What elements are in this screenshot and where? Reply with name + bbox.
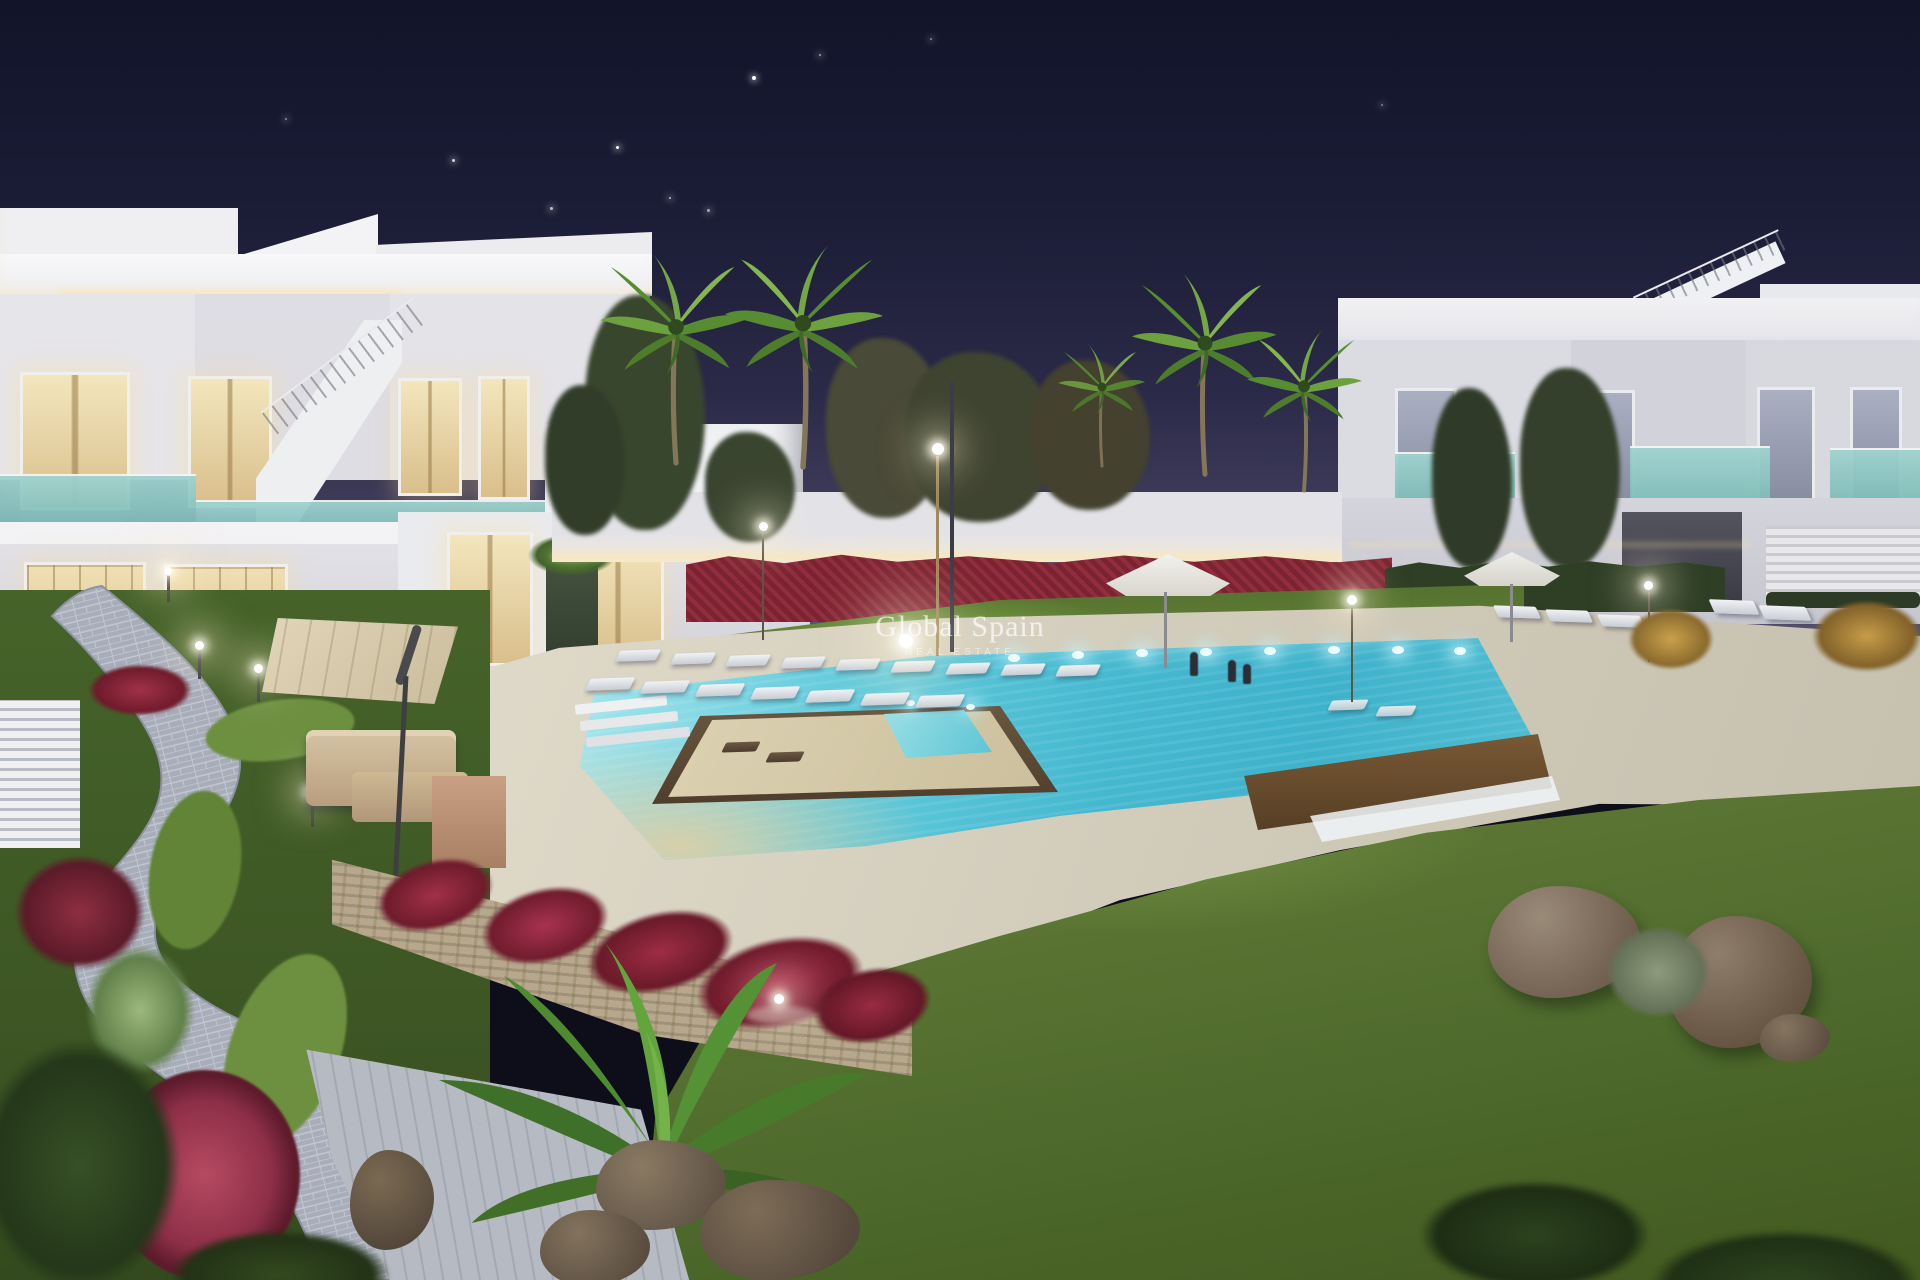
underwater-light xyxy=(1454,647,1466,655)
window-lit xyxy=(478,376,530,500)
person-silhouette xyxy=(1228,660,1236,682)
street-lamp-light xyxy=(932,443,944,455)
lamp-post xyxy=(1351,606,1353,702)
lamp-post xyxy=(762,532,764,640)
parasol-pole xyxy=(1510,584,1513,642)
balcony-glass xyxy=(1630,446,1770,502)
sun-lounger xyxy=(615,649,661,661)
bollard-light xyxy=(164,567,172,575)
sun-lounger xyxy=(780,656,826,668)
underwater-light xyxy=(1136,649,1148,657)
rock xyxy=(540,1210,650,1280)
balcony-glass xyxy=(0,474,196,526)
underwater-light xyxy=(966,704,975,710)
sun-lounger xyxy=(890,660,936,672)
star xyxy=(752,76,756,80)
sun-lounger xyxy=(915,694,966,708)
bollard xyxy=(257,674,260,702)
sun-lounger xyxy=(695,683,746,697)
underwater-light xyxy=(1008,654,1020,662)
star xyxy=(1381,104,1383,106)
star xyxy=(819,54,821,56)
person-silhouette xyxy=(1243,664,1251,684)
roof-fascia xyxy=(1338,298,1920,342)
pine-tree xyxy=(1432,388,1512,568)
sun-lounger xyxy=(1545,609,1593,622)
golden-shrub xyxy=(1628,608,1714,670)
sun-lounger xyxy=(835,658,881,670)
lamp-light xyxy=(899,634,913,648)
sun-lounger xyxy=(1493,605,1541,618)
underwater-light xyxy=(1392,646,1404,654)
white-lattice-screen xyxy=(0,700,80,848)
sun-lounger xyxy=(860,692,911,706)
underwater-light xyxy=(1072,651,1084,659)
balcony-glass xyxy=(1830,448,1920,502)
sun-lounger xyxy=(585,677,636,691)
sun-lounger xyxy=(725,654,771,666)
lamp-post xyxy=(950,382,954,652)
sun-lounger xyxy=(1000,663,1046,675)
palm-tree xyxy=(1052,330,1152,480)
pool-island xyxy=(662,708,1048,800)
sun-lounger xyxy=(945,662,991,674)
star xyxy=(285,118,287,120)
sun-lounger xyxy=(805,689,856,703)
underwater-light xyxy=(1200,648,1212,656)
night-resort-render: Global Spain REAL ESTATE xyxy=(0,0,1920,1280)
dark-bush xyxy=(1420,1180,1650,1280)
bollard-light xyxy=(254,664,263,673)
sun-lounger xyxy=(1758,605,1811,621)
sun-lounger xyxy=(1055,664,1101,676)
island-lounger xyxy=(721,741,761,752)
star xyxy=(550,207,553,210)
parasol-pole xyxy=(1164,592,1167,668)
underwater-light xyxy=(906,700,915,706)
underwater-light xyxy=(1328,646,1340,654)
bollard xyxy=(198,651,201,679)
lamp-post xyxy=(936,456,939,656)
bollard xyxy=(167,576,170,602)
star xyxy=(452,159,455,162)
lamp-light xyxy=(1644,581,1653,590)
lamp-light xyxy=(759,522,768,531)
sun-lounger xyxy=(670,652,716,664)
in-water-lounger xyxy=(1327,699,1369,710)
terracotta-wall xyxy=(432,776,506,868)
underwater-light xyxy=(1264,647,1276,655)
island-lounger xyxy=(765,751,805,762)
cantilever-parasol xyxy=(262,618,458,704)
lamp-light xyxy=(1347,595,1357,605)
sun-lounger xyxy=(1708,599,1759,615)
sun-lounger xyxy=(640,680,691,694)
bollard-light xyxy=(195,641,204,650)
palm-tree xyxy=(712,182,894,530)
star xyxy=(930,38,932,40)
person-silhouette xyxy=(1190,652,1198,676)
in-water-lounger xyxy=(1375,705,1417,716)
palm-tree xyxy=(1238,306,1370,514)
gray-shrub xyxy=(1606,926,1710,1018)
star xyxy=(616,146,619,149)
privacy-screen xyxy=(1766,526,1920,598)
pine-tree xyxy=(1520,368,1620,568)
sun-lounger xyxy=(750,686,801,700)
flower-bush xyxy=(15,855,145,970)
golden-shrub xyxy=(1812,600,1920,672)
flower-planter xyxy=(88,664,192,716)
window-lit xyxy=(398,378,462,496)
